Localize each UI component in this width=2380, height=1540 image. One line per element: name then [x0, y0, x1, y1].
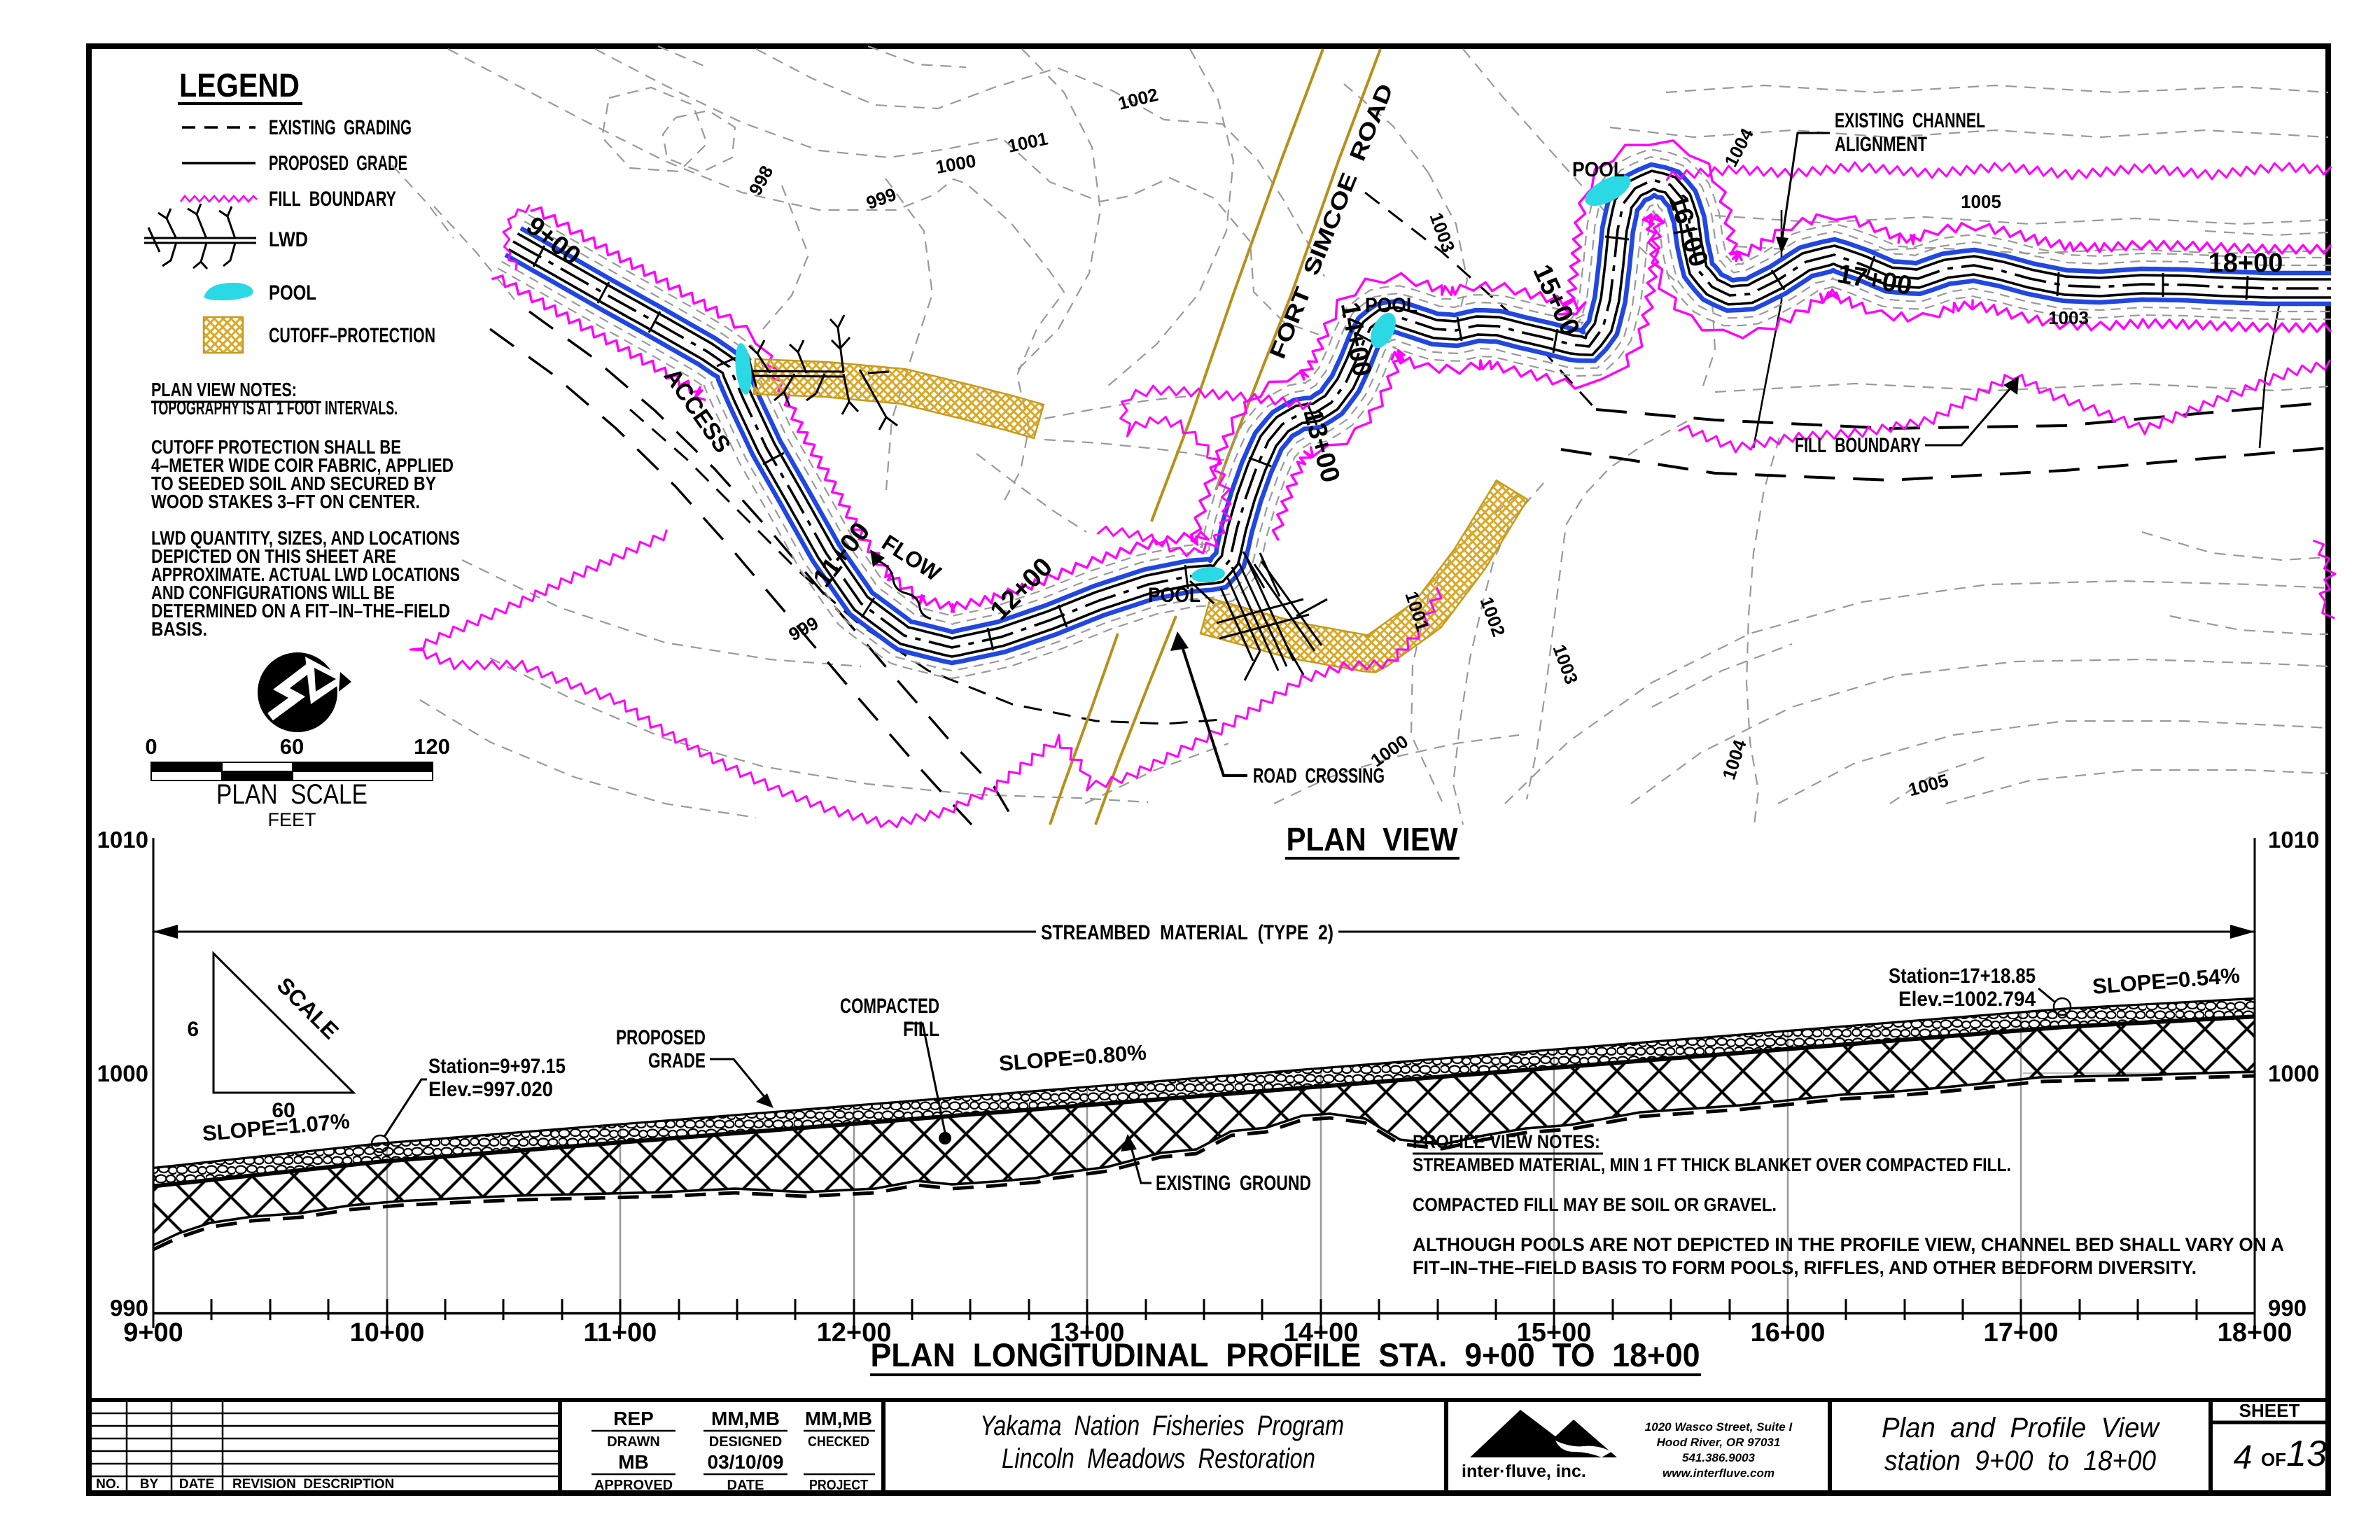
- svg-text:990: 990: [110, 1295, 148, 1321]
- svg-text:DATE: DATE: [727, 1478, 764, 1493]
- svg-text:Lincoln Meadows Restoration: Lincoln Meadows Restoration: [1002, 1443, 1315, 1474]
- svg-text:LWD: LWD: [269, 228, 308, 251]
- svg-text:PLAN LONGITUDINAL PROFILE S: PLAN LONGITUDINAL PROFILE STA. 9+00 TO 1…: [871, 1336, 1700, 1373]
- svg-text:9+00: 9+00: [123, 1318, 183, 1347]
- svg-text:0: 0: [145, 734, 157, 759]
- svg-text:PROFILE VIEW NOTES:: PROFILE VIEW NOTES:: [1413, 1131, 1600, 1152]
- svg-text:120: 120: [414, 734, 450, 759]
- svg-text:GRADE: GRADE: [648, 1049, 706, 1072]
- svg-text:WOOD STAKES 3–FT ON CENTER.: WOOD STAKES 3–FT ON CENTER.: [151, 491, 420, 512]
- svg-text:4: 4: [2234, 1439, 2253, 1476]
- svg-text:18+00: 18+00: [2208, 248, 2283, 278]
- svg-text:TOPOGRAPHY IS AT 1 FOOT INTERV: TOPOGRAPHY IS AT 1 FOOT INTERVALS.: [151, 397, 398, 419]
- svg-text:POOL: POOL: [1572, 158, 1625, 181]
- svg-text:FEET: FEET: [267, 809, 316, 830]
- svg-text:ALTHOUGH POOLS ARE NOT DEPICTE: ALTHOUGH POOLS ARE NOT DEPICTED IN THE P…: [1413, 1234, 2284, 1255]
- svg-text:PLAN SCALE: PLAN SCALE: [216, 779, 367, 810]
- svg-text:13: 13: [2286, 1434, 2327, 1474]
- svg-text:www.interfluve.com: www.interfluve.com: [1662, 1466, 1774, 1480]
- svg-text:COMPACTED: COMPACTED: [840, 995, 939, 1018]
- svg-text:Yakama Nation Fisheries Pro: Yakama Nation Fisheries Program: [980, 1410, 1344, 1441]
- svg-text:17+00: 17+00: [1984, 1318, 2059, 1347]
- svg-text:Plan and Profile View: Plan and Profile View: [1882, 1413, 2161, 1443]
- svg-text:STREAMBED MATERIAL, MIN 1 FT T: STREAMBED MATERIAL, MIN 1 FT THICK BLANK…: [1413, 1154, 2011, 1175]
- svg-text:Elev.=1002.794: Elev.=1002.794: [1898, 988, 2036, 1011]
- svg-text:REVISION DESCRIPTION: REVISION DESCRIPTION: [232, 1477, 394, 1492]
- svg-text:Station=9+97.15: Station=9+97.15: [428, 1055, 566, 1078]
- svg-text:station 9+00 to 18+00: station 9+00 to 18+00: [1884, 1445, 2156, 1476]
- svg-text:MM,MB: MM,MB: [805, 1408, 872, 1429]
- svg-text:SHEET: SHEET: [2239, 1400, 2300, 1421]
- svg-text:MB: MB: [618, 1451, 649, 1473]
- svg-text:LEGEND: LEGEND: [179, 66, 300, 104]
- svg-text:PLAN VIEW: PLAN VIEW: [1287, 821, 1459, 857]
- svg-text:Station=17+18.85: Station=17+18.85: [1889, 965, 2036, 988]
- svg-text:DATE: DATE: [179, 1477, 214, 1492]
- svg-text:10+00: 10+00: [350, 1318, 425, 1347]
- svg-text:Elev.=997.020: Elev.=997.020: [428, 1078, 553, 1101]
- svg-text:BY: BY: [140, 1477, 159, 1492]
- svg-text:1005: 1005: [1961, 191, 2001, 212]
- svg-text:541.386.9003: 541.386.9003: [1682, 1451, 1756, 1464]
- svg-text:ALIGNMENT: ALIGNMENT: [1835, 133, 1927, 156]
- svg-text:EXISTING GRADING: EXISTING GRADING: [269, 116, 412, 139]
- svg-text:PROJECT: PROJECT: [809, 1478, 868, 1493]
- svg-text:03/10/09: 03/10/09: [708, 1451, 784, 1473]
- svg-text:EXISTING GROUND: EXISTING GROUND: [1156, 1172, 1311, 1195]
- svg-text:1003: 1003: [2048, 307, 2089, 328]
- svg-text:990: 990: [2268, 1295, 2306, 1321]
- svg-text:DESIGNED: DESIGNED: [709, 1434, 782, 1450]
- svg-text:REP: REP: [613, 1408, 654, 1429]
- svg-text:OF: OF: [2261, 1449, 2286, 1470]
- svg-text:COMPACTED FILL MAY BE SOIL OR: COMPACTED FILL MAY BE SOIL OR GRAVEL.: [1413, 1194, 1777, 1215]
- svg-text:ROAD CROSSING: ROAD CROSSING: [1253, 764, 1385, 787]
- svg-text:inter·fluve, inc.: inter·fluve, inc.: [1462, 1462, 1586, 1481]
- svg-text:STREAMBED MATERIAL (TYPE 2): STREAMBED MATERIAL (TYPE 2): [1041, 921, 1333, 944]
- svg-text:1010: 1010: [97, 827, 148, 853]
- svg-text:FILL BOUNDARY: FILL BOUNDARY: [1795, 434, 1921, 457]
- svg-text:NO.: NO.: [96, 1477, 120, 1492]
- svg-text:Hood River, OR 97031: Hood River, OR 97031: [1657, 1436, 1781, 1449]
- svg-text:POOL: POOL: [269, 281, 316, 304]
- svg-text:CUTOFF–PROTECTION: CUTOFF–PROTECTION: [269, 324, 435, 347]
- svg-text:BASIS.: BASIS.: [151, 618, 207, 640]
- svg-text:6: 6: [187, 1018, 199, 1041]
- svg-text:EXISTING CHANNEL: EXISTING CHANNEL: [1835, 109, 1985, 132]
- svg-text:PROPOSED: PROPOSED: [616, 1026, 706, 1049]
- svg-text:POOL: POOL: [1148, 584, 1200, 607]
- svg-text:MM,MB: MM,MB: [711, 1408, 780, 1429]
- svg-text:1000: 1000: [2268, 1060, 2319, 1086]
- svg-text:FIT–IN–THE–FIELD BASIS TO FORM: FIT–IN–THE–FIELD BASIS TO FORM POOLS, RI…: [1413, 1257, 2197, 1278]
- svg-text:1000: 1000: [97, 1060, 148, 1086]
- svg-text:16+00: 16+00: [1751, 1318, 1826, 1347]
- svg-text:DRAWN: DRAWN: [607, 1434, 660, 1450]
- svg-text:POOL: POOL: [1365, 294, 1417, 317]
- svg-text:FILL: FILL: [903, 1018, 939, 1041]
- svg-text:1020 Wasco Street, Suite I: 1020 Wasco Street, Suite I: [1645, 1420, 1793, 1434]
- svg-text:11+00: 11+00: [584, 1318, 657, 1347]
- svg-text:FILL BOUNDARY: FILL BOUNDARY: [269, 188, 396, 211]
- svg-text:1010: 1010: [2268, 827, 2319, 853]
- svg-text:CHECKED: CHECKED: [808, 1434, 869, 1450]
- svg-text:18+00: 18+00: [2218, 1318, 2292, 1347]
- svg-text:PROPOSED GRADE: PROPOSED GRADE: [269, 152, 407, 175]
- svg-text:APPROVED: APPROVED: [594, 1478, 673, 1493]
- svg-text:60: 60: [280, 734, 304, 759]
